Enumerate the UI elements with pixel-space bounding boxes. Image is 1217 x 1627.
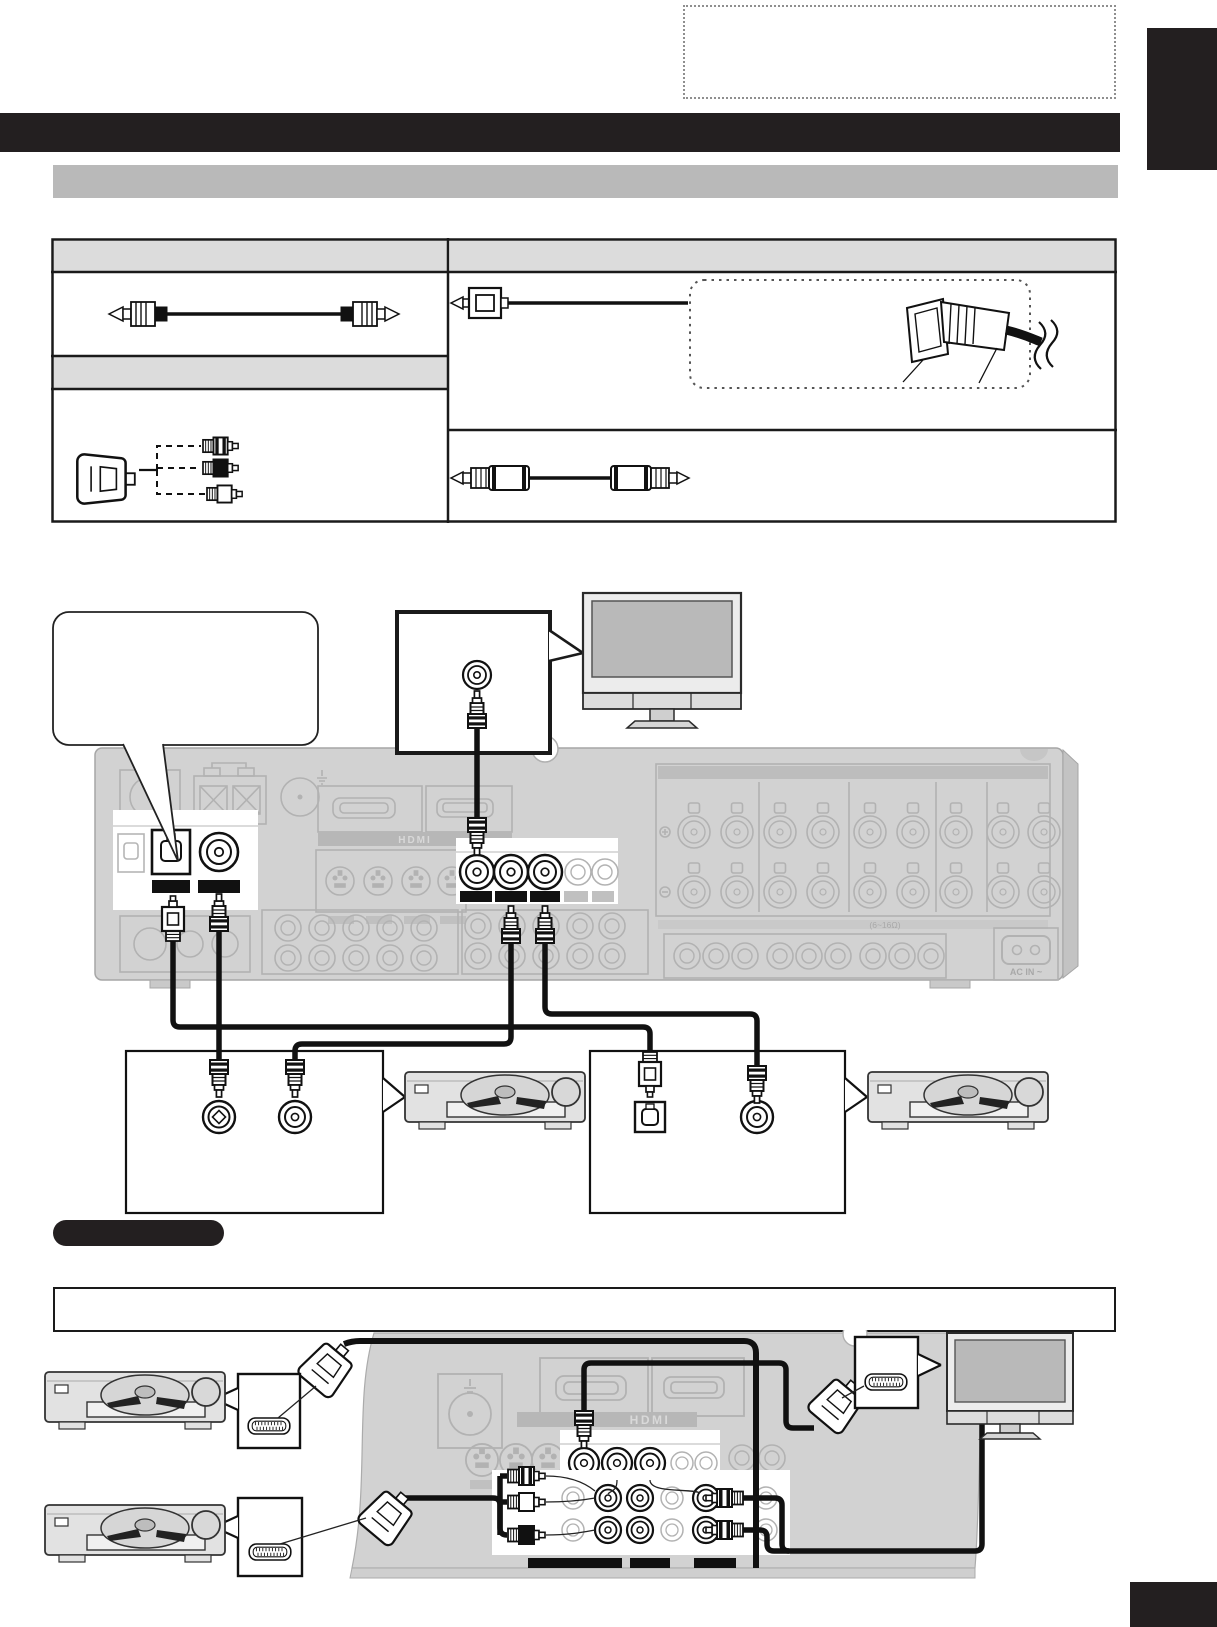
monitor-out-jack xyxy=(460,855,494,889)
ac-in-label: AC IN ~ xyxy=(1010,967,1042,977)
coaxial-in-jack xyxy=(200,833,238,871)
audio-out-jack-2 xyxy=(741,1101,773,1133)
table-header-left-2 xyxy=(54,357,447,388)
table-header-right xyxy=(450,241,1114,272)
title-bar xyxy=(0,113,1120,152)
audio-in-left-jack xyxy=(494,855,528,889)
page-edge-tab xyxy=(1147,28,1217,170)
scart-connection-diagram: HDMI xyxy=(0,1330,1217,1627)
cable-table xyxy=(51,238,1117,523)
receiver-rear-panel: HDMI (6~16Ω) AC IN ~ xyxy=(95,736,1078,988)
dotted-note-box xyxy=(683,5,1116,99)
audio-out-jack xyxy=(279,1101,311,1133)
page-corner-mark xyxy=(1130,1582,1217,1627)
manual-page: HDMI (6~16Ω) AC IN ~ xyxy=(0,0,1217,1627)
hdmi-label-zoom: HDMI xyxy=(630,1413,671,1427)
scart-callout-dvd2 xyxy=(214,1498,366,1576)
digital-audio-callout xyxy=(126,1051,383,1213)
coaxial-digital-out-jack xyxy=(203,1101,235,1133)
dvd-player-1 xyxy=(405,1072,585,1129)
optical-audio-callout xyxy=(590,1051,845,1213)
digital-in-highlight xyxy=(113,810,258,910)
monitor-out-callout xyxy=(397,612,583,753)
dvd-player-3 xyxy=(45,1372,225,1429)
dvd-player-4 xyxy=(45,1505,225,1562)
monitor-jack-icon xyxy=(463,661,491,689)
section-header-bar xyxy=(53,165,1118,198)
dvd-player-2 xyxy=(868,1072,1048,1129)
hdmi-label: HDMI xyxy=(398,835,432,846)
info-box xyxy=(53,1287,1116,1332)
note-pill xyxy=(53,1220,224,1246)
tv-bottom xyxy=(947,1333,1073,1439)
scart-callout-dvd1 xyxy=(214,1374,316,1448)
optical-out-jack xyxy=(635,1102,665,1132)
main-connection-diagram: HDMI (6~16Ω) AC IN ~ xyxy=(0,580,1217,1240)
table-header-left xyxy=(54,241,447,272)
impedance-label: (6~16Ω) xyxy=(869,920,900,930)
tv-top xyxy=(583,593,741,728)
av-jack-highlight-zoom xyxy=(492,1470,790,1568)
audio-in-right-jack xyxy=(528,855,562,889)
